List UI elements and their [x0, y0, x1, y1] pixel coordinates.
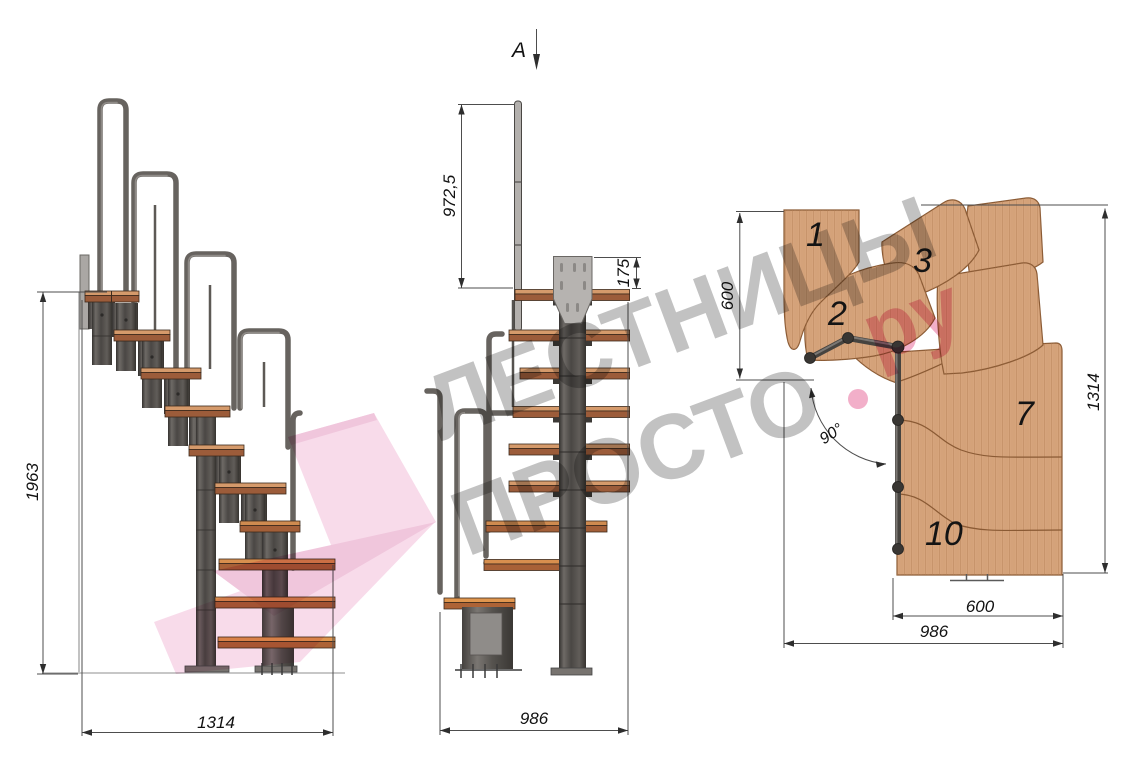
svg-text:972,5: 972,5: [440, 174, 459, 217]
svg-text:7: 7: [1015, 395, 1035, 433]
svg-text:986: 986: [920, 622, 949, 641]
svg-text:A: A: [510, 39, 526, 62]
svg-text:1314: 1314: [1084, 373, 1103, 411]
svg-text:1963: 1963: [23, 463, 42, 501]
svg-text:986: 986: [520, 709, 549, 728]
svg-text:10: 10: [925, 515, 963, 553]
svg-text:600: 600: [966, 597, 995, 616]
svg-text:1314: 1314: [197, 713, 235, 732]
